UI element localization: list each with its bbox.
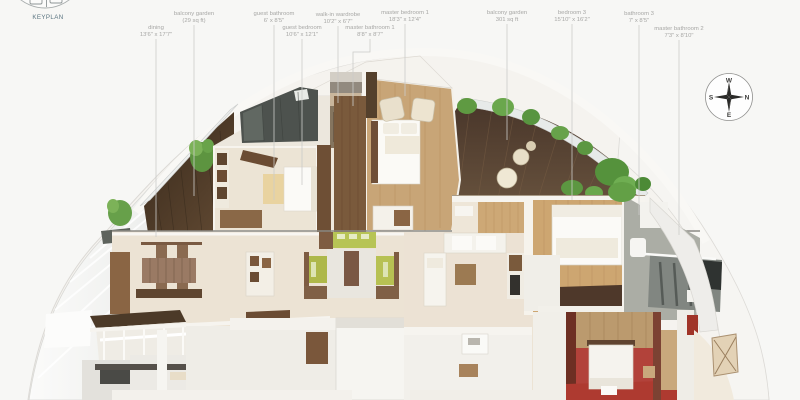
svg-text:18'3" x 12'4": 18'3" x 12'4"	[389, 17, 421, 23]
svg-text:master bathroom 1: master bathroom 1	[345, 25, 394, 31]
svg-text:15'10" x 16'2": 15'10" x 16'2"	[554, 17, 590, 23]
svg-text:W: W	[726, 78, 733, 85]
svg-text:master bedroom 1: master bedroom 1	[381, 10, 429, 16]
svg-text:7'3" x 8'10": 7'3" x 8'10"	[664, 33, 693, 39]
svg-text:balcony garden: balcony garden	[487, 10, 527, 16]
svg-text:N: N	[745, 95, 750, 102]
svg-text:301 sq ft: 301 sq ft	[496, 17, 519, 23]
svg-text:walk-in wardrobe: walk-in wardrobe	[315, 12, 361, 18]
svg-text:10'6" x 12'1": 10'6" x 12'1"	[286, 32, 318, 38]
svg-text:7' x 8'5": 7' x 8'5"	[629, 18, 649, 24]
svg-text:8'8" x 8'7": 8'8" x 8'7"	[357, 32, 383, 38]
svg-text:bathroom 3: bathroom 3	[624, 11, 655, 17]
svg-text:master bathroom 2: master bathroom 2	[654, 26, 703, 32]
svg-text:dining: dining	[148, 25, 164, 31]
svg-text:13'6" x 17'7": 13'6" x 17'7"	[140, 32, 172, 38]
svg-text:bedroom 3: bedroom 3	[558, 10, 587, 16]
svg-text:guest bathroom: guest bathroom	[254, 11, 295, 17]
svg-text:KEYPLAN: KEYPLAN	[32, 14, 63, 21]
svg-text:S: S	[709, 95, 714, 102]
svg-text:guest bedroom: guest bedroom	[282, 25, 321, 31]
svg-text:(29 sq ft): (29 sq ft)	[182, 18, 205, 24]
svg-text:balcony garden: balcony garden	[174, 11, 214, 17]
svg-text:6' x 8'5": 6' x 8'5"	[264, 18, 284, 24]
svg-text:E: E	[727, 112, 732, 119]
